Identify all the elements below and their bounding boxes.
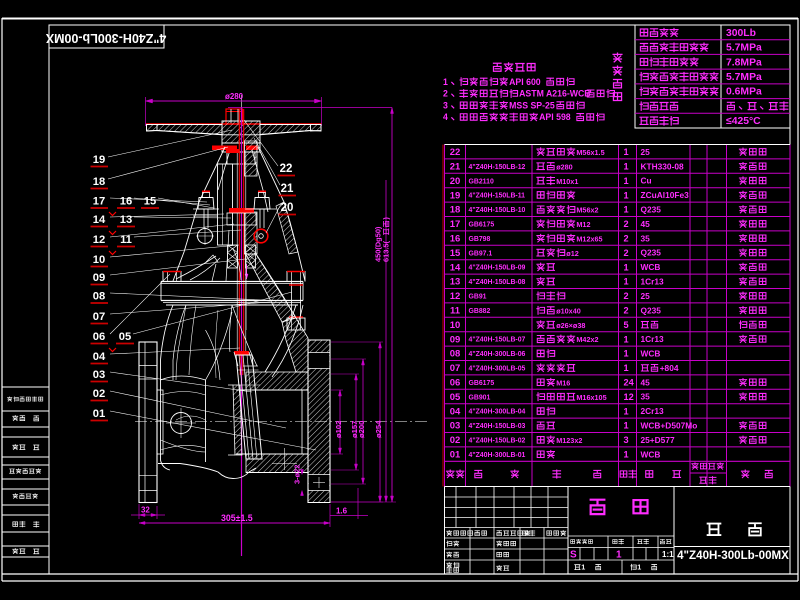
- svg-text:2: 2: [624, 291, 629, 301]
- svg-text:3: 3: [624, 435, 629, 445]
- svg-text:KTH330-08: KTH330-08: [641, 161, 684, 171]
- svg-text:15: 15: [450, 248, 461, 259]
- svg-text:1: 1: [624, 277, 629, 287]
- svg-text:1: 1: [624, 162, 629, 172]
- svg-text:02: 02: [93, 388, 105, 400]
- svg-text:GB91: GB91: [469, 294, 487, 301]
- svg-text:ø280: ø280: [556, 162, 573, 171]
- svg-text:M123x2: M123x2: [556, 436, 582, 445]
- svg-text:1: 1: [624, 450, 629, 460]
- svg-text:45: 45: [641, 377, 651, 387]
- svg-text:14: 14: [93, 214, 106, 226]
- svg-text:ø12: ø12: [566, 249, 579, 258]
- svg-text:35: 35: [641, 392, 651, 402]
- svg-text:1: 1: [624, 176, 629, 186]
- svg-text:1: 1: [624, 349, 629, 359]
- svg-text:08: 08: [450, 349, 461, 360]
- svg-text:Q235: Q235: [641, 248, 662, 258]
- svg-text:1: 1: [637, 562, 641, 571]
- svg-text:25: 25: [641, 147, 651, 157]
- svg-text:M12: M12: [576, 220, 590, 229]
- svg-text:07: 07: [93, 311, 105, 323]
- svg-text:4: 4: [443, 112, 448, 122]
- svg-text:4"Z40H-300Lb-00MX: 4"Z40H-300Lb-00MX: [677, 549, 789, 562]
- svg-text:1: 1: [624, 147, 629, 157]
- svg-text:03: 03: [93, 369, 105, 381]
- svg-text:Cu: Cu: [641, 176, 652, 186]
- svg-text:M16x105: M16x105: [576, 393, 606, 402]
- svg-text:13: 13: [120, 214, 132, 226]
- svg-text:M10x1: M10x1: [556, 177, 578, 186]
- svg-text:ø280: ø280: [225, 92, 244, 101]
- svg-text:20: 20: [281, 202, 294, 214]
- svg-text:4"Z40H-150LB-08: 4"Z40H-150LB-08: [469, 279, 526, 286]
- svg-text:1: 1: [581, 562, 585, 571]
- svg-text:20: 20: [450, 176, 461, 187]
- svg-text:+804: +804: [660, 363, 679, 373]
- svg-text:19: 19: [93, 154, 105, 166]
- svg-text:300Lb: 300Lb: [726, 28, 756, 39]
- svg-text:1: 1: [443, 77, 448, 87]
- svg-text:12: 12: [93, 234, 105, 246]
- svg-text:2: 2: [624, 219, 629, 229]
- svg-text:25+D577: 25+D577: [641, 435, 675, 445]
- svg-text:04: 04: [93, 351, 106, 363]
- svg-text:12: 12: [624, 392, 634, 402]
- svg-text:≤425°C: ≤425°C: [726, 116, 761, 127]
- svg-text:4"Z40H-300LB-04: 4"Z40H-300LB-04: [469, 409, 526, 416]
- svg-text:12: 12: [450, 291, 461, 302]
- svg-text:GB798: GB798: [469, 236, 491, 243]
- svg-text:01: 01: [450, 450, 461, 461]
- svg-text:GB6175: GB6175: [469, 222, 495, 229]
- svg-text:M42x2: M42x2: [576, 335, 598, 344]
- svg-text:3: 3: [443, 100, 448, 110]
- svg-text:15: 15: [144, 196, 156, 208]
- svg-text:1Cr13: 1Cr13: [641, 334, 665, 344]
- svg-text:Q235: Q235: [641, 305, 662, 315]
- svg-text:1Cr13: 1Cr13: [641, 277, 665, 287]
- svg-text:WCB: WCB: [641, 449, 661, 459]
- svg-text:09: 09: [450, 334, 461, 345]
- svg-text:1: 1: [624, 363, 629, 373]
- svg-text:5: 5: [624, 320, 629, 330]
- svg-text:7.8MPa: 7.8MPa: [726, 57, 762, 68]
- svg-text:1: 1: [624, 190, 629, 200]
- svg-text:17: 17: [93, 196, 105, 208]
- svg-text:5.7MPa: 5.7MPa: [726, 72, 762, 83]
- svg-text:ZCuAl10Fe3: ZCuAl10Fe3: [641, 190, 690, 200]
- svg-text:M56x1.5: M56x1.5: [576, 148, 604, 157]
- svg-text:4"Z40H-150LB-07: 4"Z40H-150LB-07: [469, 337, 526, 344]
- svg-text:1: 1: [624, 205, 629, 215]
- svg-text:1.6: 1.6: [336, 507, 348, 516]
- svg-text:ø200: ø200: [357, 421, 366, 438]
- svg-text:GB97.1: GB97.1: [469, 250, 493, 257]
- svg-text:GB2110: GB2110: [469, 178, 494, 185]
- svg-text:10: 10: [450, 320, 461, 331]
- svg-text:03: 03: [450, 421, 461, 432]
- svg-text:21: 21: [450, 162, 461, 173]
- svg-text:ASTM A216-WCB: ASTM A216-WCB: [519, 89, 591, 99]
- svg-text:3-ø22: 3-ø22: [293, 465, 302, 484]
- svg-text:S: S: [570, 550, 577, 561]
- svg-text:2Cr13: 2Cr13: [641, 406, 665, 416]
- svg-text:24: 24: [624, 378, 635, 388]
- svg-text:WCB: WCB: [641, 349, 661, 359]
- svg-text:1: 1: [624, 406, 629, 416]
- svg-text:4"Z40H-300Lb-00MX: 4"Z40H-300Lb-00MX: [45, 31, 166, 45]
- svg-text:16: 16: [450, 234, 461, 245]
- svg-text:2: 2: [624, 234, 629, 244]
- svg-text:WCB+D507Mo: WCB+D507Mo: [641, 421, 698, 431]
- svg-text:4"Z40H-150LB-10: 4"Z40H-150LB-10: [469, 207, 526, 214]
- svg-text:2: 2: [624, 306, 629, 316]
- svg-text:14: 14: [450, 262, 461, 273]
- svg-text:1: 1: [624, 421, 629, 431]
- svg-text:4"Z40H-150LB-02: 4"Z40H-150LB-02: [469, 438, 526, 445]
- svg-text:M56x2: M56x2: [576, 206, 598, 215]
- svg-text:M16: M16: [556, 378, 570, 387]
- svg-text:ø102: ø102: [334, 421, 343, 438]
- svg-text:1: 1: [624, 334, 629, 344]
- svg-text:MSS SP-25: MSS SP-25: [509, 100, 555, 110]
- svg-text:613.5(: 613.5(: [382, 240, 391, 262]
- svg-text:01: 01: [93, 408, 105, 420]
- svg-text:2: 2: [443, 89, 448, 99]
- svg-text:06: 06: [93, 331, 105, 343]
- svg-text:GB6175: GB6175: [469, 380, 495, 387]
- svg-text:17: 17: [450, 219, 461, 230]
- svg-text:ø26×ø38: ø26×ø38: [556, 321, 585, 330]
- svg-text:Q235: Q235: [641, 205, 662, 215]
- svg-text:10: 10: [93, 254, 105, 266]
- svg-text:1:1: 1:1: [662, 550, 674, 559]
- svg-text:05: 05: [119, 331, 131, 343]
- svg-text:22: 22: [450, 147, 461, 158]
- svg-text:06: 06: [450, 378, 461, 389]
- svg-text:WCB: WCB: [641, 262, 661, 272]
- svg-text:08: 08: [93, 291, 105, 303]
- svg-text:4"Z40H-150LB-03: 4"Z40H-150LB-03: [469, 423, 526, 430]
- svg-text:API 600: API 600: [509, 77, 541, 87]
- svg-text:09: 09: [93, 272, 105, 284]
- svg-text:M12x65: M12x65: [576, 234, 602, 243]
- svg-text:4"Z40H-300LB-05: 4"Z40H-300LB-05: [469, 366, 526, 373]
- svg-text:22: 22: [280, 163, 293, 175]
- svg-text:13: 13: [450, 277, 461, 288]
- svg-text:4"Z40H-150LB-12: 4"Z40H-150LB-12: [469, 164, 526, 171]
- svg-text:4"Z40H-300LB-06: 4"Z40H-300LB-06: [469, 351, 526, 358]
- svg-text:16: 16: [120, 196, 132, 208]
- svg-text:GB882: GB882: [469, 308, 491, 315]
- svg-text:21: 21: [281, 183, 294, 195]
- svg-text:305±1.5: 305±1.5: [221, 513, 253, 523]
- svg-text:ø10x40: ø10x40: [556, 306, 581, 315]
- svg-text:GB901: GB901: [469, 394, 491, 401]
- svg-text:25: 25: [641, 291, 651, 301]
- svg-text:32: 32: [141, 506, 150, 515]
- svg-text:API 598: API 598: [539, 112, 571, 122]
- svg-text:4"Z40H-150LB-11: 4"Z40H-150LB-11: [469, 193, 526, 200]
- svg-text:02: 02: [450, 435, 461, 446]
- svg-text:1: 1: [624, 262, 629, 272]
- svg-text:04: 04: [450, 406, 461, 417]
- svg-text:07: 07: [450, 363, 461, 374]
- svg-text:2: 2: [624, 248, 629, 258]
- svg-text:4"Z40H-150LB-09: 4"Z40H-150LB-09: [469, 265, 526, 272]
- svg-text:35: 35: [641, 233, 651, 243]
- svg-text:ø254: ø254: [374, 420, 383, 438]
- svg-text:0.6MPa: 0.6MPa: [726, 87, 762, 98]
- svg-text:05: 05: [450, 392, 461, 403]
- svg-text:11: 11: [450, 306, 461, 317]
- svg-text:4"Z40H-300LB-01: 4"Z40H-300LB-01: [469, 452, 526, 459]
- svg-text:18: 18: [450, 205, 461, 216]
- svg-text:18: 18: [93, 176, 105, 188]
- svg-text:5.7MPa: 5.7MPa: [726, 43, 762, 54]
- svg-text:1: 1: [616, 550, 622, 561]
- svg-text:19: 19: [450, 190, 461, 201]
- svg-text:45: 45: [641, 219, 651, 229]
